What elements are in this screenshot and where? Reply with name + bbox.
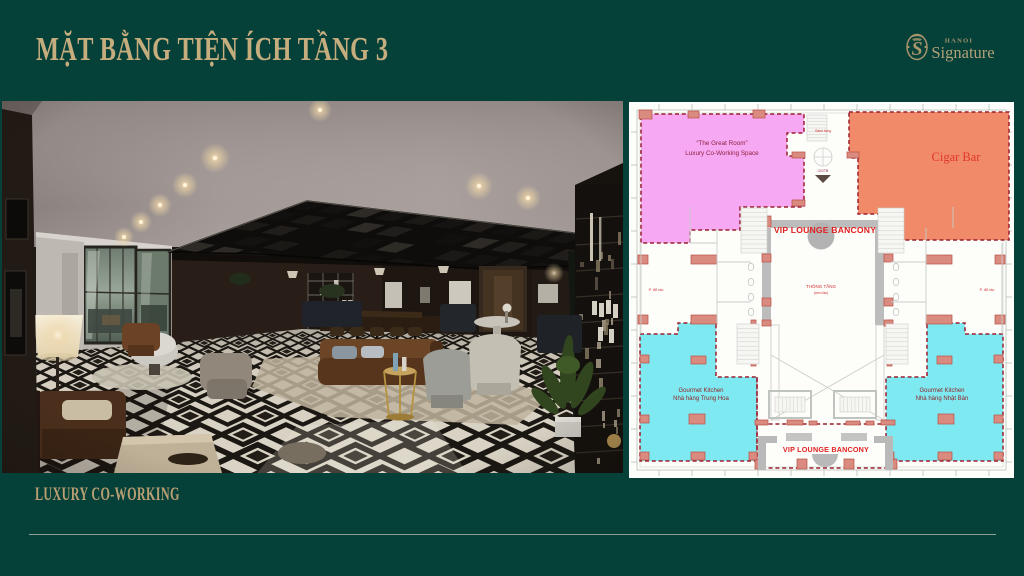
svg-text:Signature: Signature [931,43,994,62]
svg-text:Cigar Bar: Cigar Bar [932,150,982,164]
svg-text:S: S [911,38,922,60]
svg-text:Gourmet Kitchen: Gourmet Kitchen [919,388,964,394]
svg-text:(xem lầu): (xem lầu) [814,291,829,295]
svg-text:Nhà hàng Nhật Bản: Nhà hàng Nhật Bản [916,396,969,402]
svg-text:Nhà hàng Trung Hoa: Nhà hàng Trung Hoa [673,396,729,402]
svg-text:Luxury Co-Working Space: Luxury Co-Working Space [685,150,759,157]
svg-text:P. đổ rác: P. đổ rác [649,288,664,292]
svg-text:VIP LOUNGE BANCONY: VIP LOUNGE BANCONY [774,225,876,235]
svg-text:CIGTB: CIGTB [818,169,829,173]
svg-text:P. đổ rác: P. đổ rác [980,288,995,292]
svg-text:VIP LOUNGE BANCONY: VIP LOUNGE BANCONY [783,445,869,454]
svg-text:Sảnh tầng: Sảnh tầng [815,129,831,133]
svg-text:Gourmet Kitchen: Gourmet Kitchen [678,388,723,394]
svg-text:THÔNG TẦNG: THÔNG TẦNG [806,283,836,289]
svg-text:“The Great Room”: “The Great Room” [696,140,747,147]
